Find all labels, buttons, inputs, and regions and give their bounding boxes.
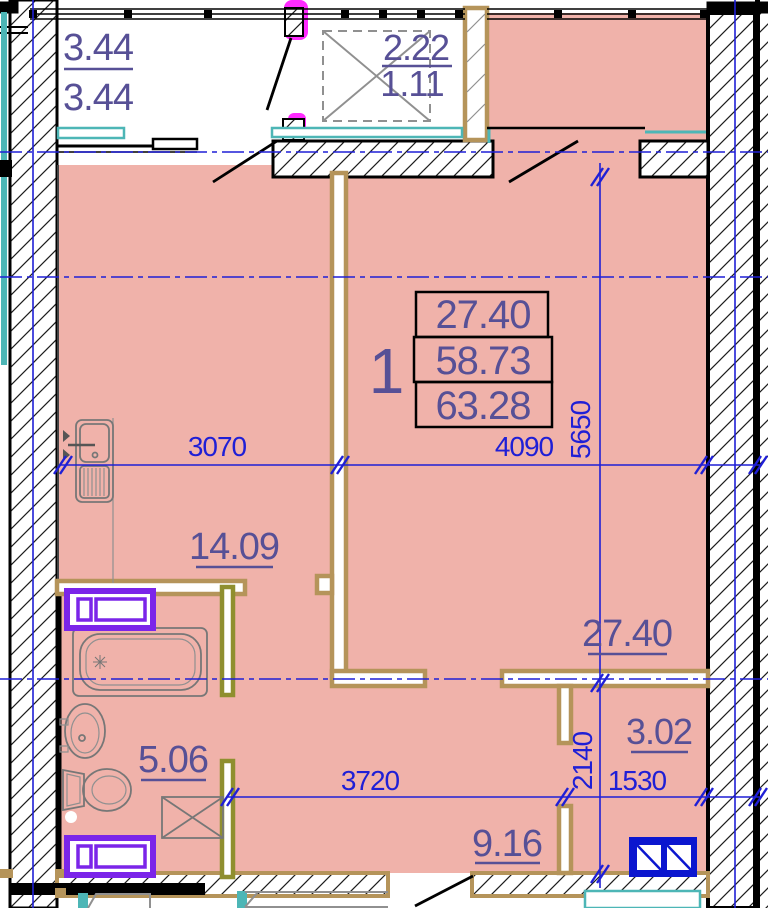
- living-area-label: 27.40: [582, 613, 672, 655]
- dim-kitchen-width: 3070: [188, 431, 247, 462]
- entrance-door-swing: [415, 876, 473, 906]
- table-living-area: 27.40: [435, 293, 530, 337]
- table-apartment-area: 58.73: [435, 339, 530, 383]
- kitchen-partition: [332, 173, 346, 677]
- floor-plan-drawing: 1 27.40 58.73 63.28 3.44 3.44 2.22 1.11 …: [0, 0, 768, 908]
- balcony-middle-numerator: 2.22: [383, 27, 449, 68]
- floor-drain-icon: [65, 811, 77, 823]
- dim-storage-height: 2140: [567, 731, 598, 790]
- unit-number: 1: [369, 335, 404, 407]
- balcony-middle-label: 2.22 1.11: [380, 27, 452, 104]
- storage-area-label: 3.02: [626, 711, 692, 752]
- dim-living-height: 5650: [565, 400, 596, 459]
- electrical-cabinet-icon: [629, 837, 697, 877]
- dim-storage-width: 1530: [608, 765, 667, 796]
- storage-partition-lower: [559, 806, 571, 873]
- vent-shaft-bottom: [67, 838, 153, 875]
- balcony-left-denominator: 3.44: [63, 77, 134, 119]
- balcony-divider-pier: [283, 0, 308, 140]
- vent-shaft-top: [67, 591, 153, 628]
- floor-plan: 1 27.40 58.73 63.28 3.44 3.44 2.22 1.11 …: [0, 0, 768, 908]
- kitchen-area-label: 14.09: [189, 526, 279, 568]
- bathroom-area-label: 5.06: [138, 739, 208, 781]
- balcony-left-numerator: 3.44: [63, 27, 134, 69]
- drain-icon: [93, 655, 107, 669]
- balcony-middle-denominator: 1.11: [380, 63, 443, 104]
- balcony-right-pier: [465, 8, 487, 140]
- table-total-area: 63.28: [435, 384, 530, 428]
- dim-hall-width: 3720: [341, 765, 400, 796]
- dim-living-width: 4090: [495, 431, 554, 462]
- hall-area-label: 9.16: [472, 823, 542, 865]
